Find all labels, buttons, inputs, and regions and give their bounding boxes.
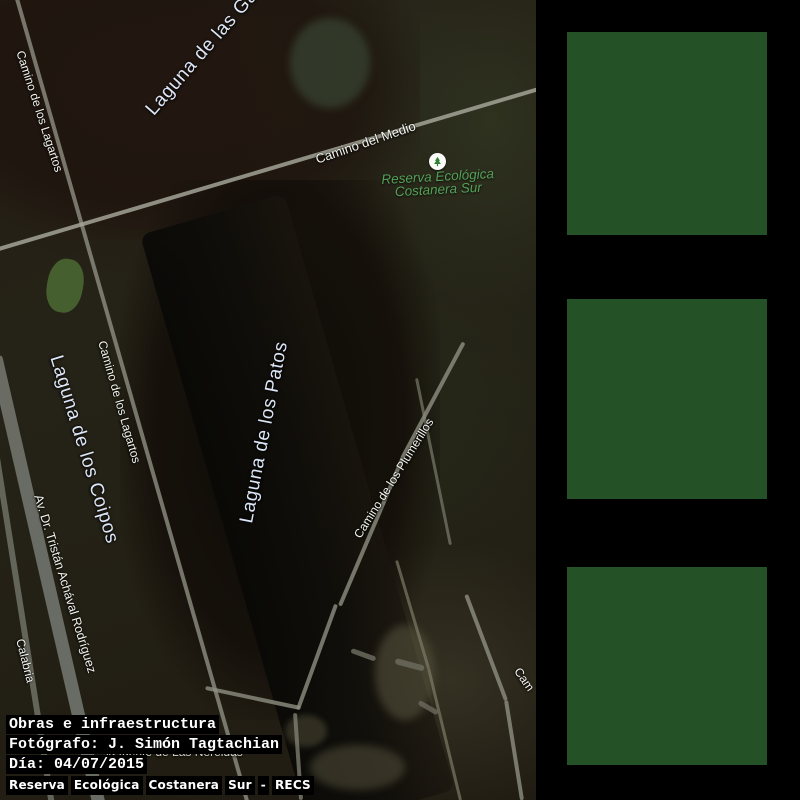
poi-marker-reserva[interactable] [429, 153, 446, 170]
poi-label-reserva: Reserva Ecológica Costanera Sur [356, 167, 519, 200]
photo-placeholder-1 [567, 32, 767, 235]
caption-block: Obras e infraestructura Fotógrafo: J. Si… [6, 716, 317, 798]
caption-site-name: ReservaEcológicaCostaneraSur-RECS [6, 776, 317, 795]
caption-photographer: Fotógrafo: J. Simón Tagtachian [6, 736, 317, 753]
vegetation-patch [290, 18, 370, 108]
road-east-edge-1 [464, 594, 508, 701]
vegetation-patch [43, 256, 88, 315]
road-east-edge-2 [504, 700, 524, 800]
right-panel [536, 0, 800, 800]
sand-patch [310, 745, 405, 790]
map-label-calabria: Calabria [13, 637, 37, 684]
tree-icon [432, 156, 443, 167]
photo-placeholder-2 [567, 299, 767, 499]
map-label-camino-edge: Cam [511, 665, 536, 694]
caption-title: Obras e infraestructura [6, 716, 317, 733]
caption-date: Día: 04/07/2015 [6, 756, 317, 773]
photo-placeholder-3 [567, 567, 767, 765]
screen: Laguna de las Ga Camino de los Lagartos … [0, 0, 800, 800]
satellite-map[interactable]: Laguna de las Ga Camino de los Lagartos … [0, 0, 536, 800]
